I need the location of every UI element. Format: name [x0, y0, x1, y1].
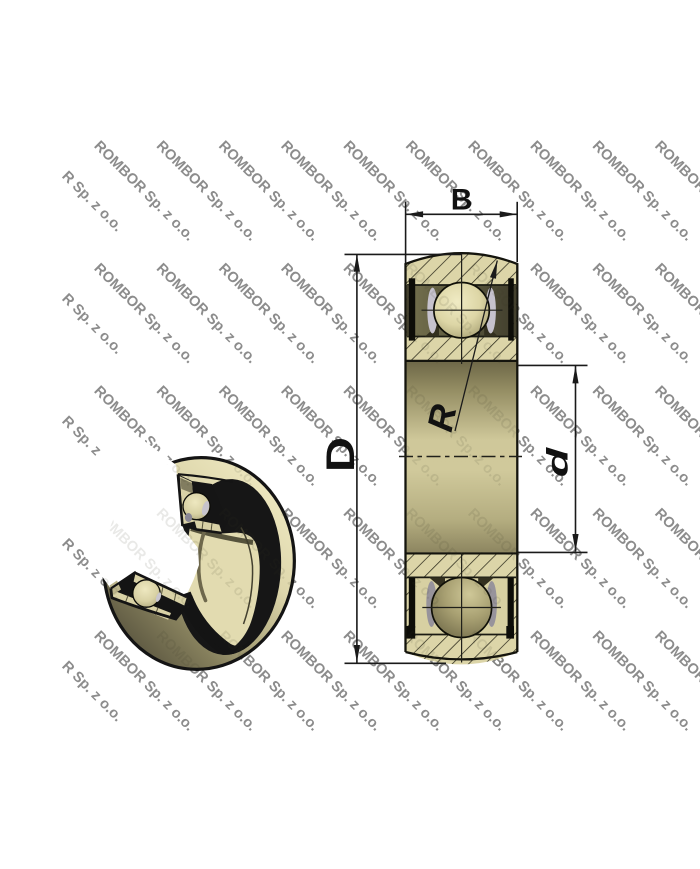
svg-text:d: d: [541, 446, 574, 477]
svg-text:R Sp. z o.o.: R Sp. z o.o.: [58, 291, 125, 358]
svg-text:R Sp. z o.o.: R Sp. z o.o.: [58, 658, 125, 725]
svg-text:B: B: [451, 183, 473, 216]
svg-text:R Sp. z o.o.: R Sp. z o.o.: [58, 168, 125, 235]
svg-text:D: D: [319, 437, 363, 472]
